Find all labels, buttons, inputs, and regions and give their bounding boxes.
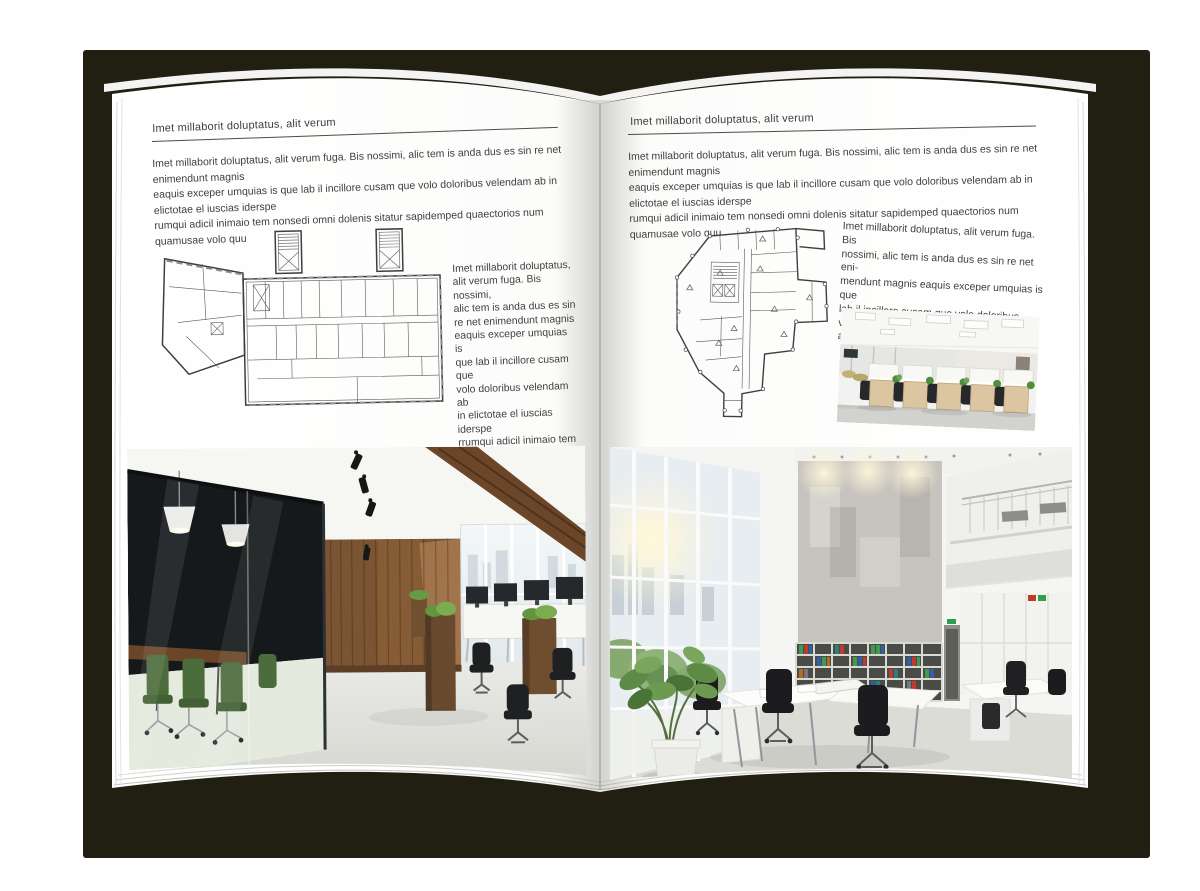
magazine-spread-mockup: Imet millaborit doluptatus, alit verum I…: [0, 0, 1200, 891]
photo-loft-office-interior: [127, 446, 587, 779]
photo-workstations-small: [837, 308, 1040, 431]
floor-plan-right: [644, 219, 835, 429]
photo-atrium-office-interior: [610, 447, 1072, 780]
floor-plan-left: [154, 223, 450, 413]
